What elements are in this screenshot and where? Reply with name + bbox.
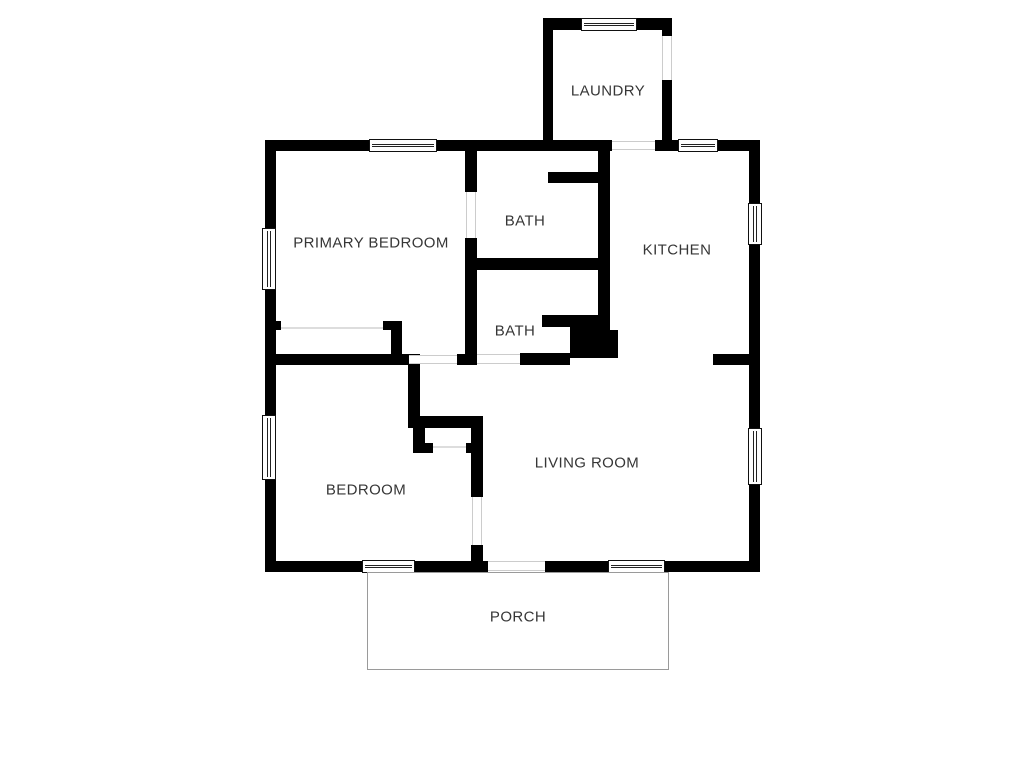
wall	[425, 443, 433, 453]
wall	[713, 354, 749, 365]
wall	[520, 353, 570, 365]
room-label-bath-upper: BATH	[505, 213, 546, 230]
wall	[543, 18, 553, 150]
room-label-kitchen: KITCHEN	[643, 242, 712, 259]
wall	[465, 150, 477, 192]
wall	[269, 354, 409, 365]
wall	[545, 561, 608, 572]
door-opening	[472, 497, 482, 545]
wall	[665, 561, 760, 572]
window-symbol	[262, 228, 276, 290]
room-label-porch: PORCH	[490, 609, 546, 626]
wall	[265, 561, 362, 572]
fireplace-block	[570, 315, 607, 358]
wall	[265, 140, 369, 151]
wall	[471, 545, 483, 562]
room-label-bath-lower: BATH	[495, 323, 536, 340]
wall	[273, 321, 281, 330]
room-label-laundry: LAUNDRY	[571, 83, 645, 100]
floor-plan: LAUNDRY PRIMARY BEDROOM BATH KITCHEN BAT…	[0, 0, 1024, 768]
window-symbol	[748, 428, 762, 485]
room-label-living-room: LIVING ROOM	[535, 455, 639, 472]
door-opening	[662, 36, 672, 80]
front-door-opening	[488, 561, 545, 571]
window-symbol	[262, 415, 276, 480]
wall	[662, 80, 672, 151]
wall	[471, 428, 483, 497]
window-symbol	[678, 139, 718, 152]
wall	[408, 416, 483, 428]
closet-door-line	[433, 446, 466, 448]
room-label-bedroom: BEDROOM	[326, 482, 406, 499]
window-symbol	[581, 18, 637, 31]
door-opening	[409, 355, 457, 364]
wall	[477, 258, 610, 270]
window-symbol	[369, 139, 437, 152]
wall	[437, 140, 612, 151]
closet-door-line	[281, 327, 383, 329]
wall	[415, 561, 488, 572]
door-opening	[466, 192, 476, 238]
fireplace-block	[542, 315, 570, 327]
room-label-primary-bedroom: PRIMARY BEDROOM	[293, 235, 448, 252]
door-opening	[477, 354, 520, 364]
wall	[548, 172, 598, 183]
wall	[413, 428, 425, 453]
wall	[457, 354, 477, 365]
wall	[391, 321, 402, 365]
wall	[662, 18, 672, 36]
fireplace-block	[607, 330, 618, 358]
wall	[465, 238, 477, 365]
wall	[598, 150, 610, 330]
door-opening	[612, 141, 655, 150]
window-symbol	[748, 203, 762, 245]
